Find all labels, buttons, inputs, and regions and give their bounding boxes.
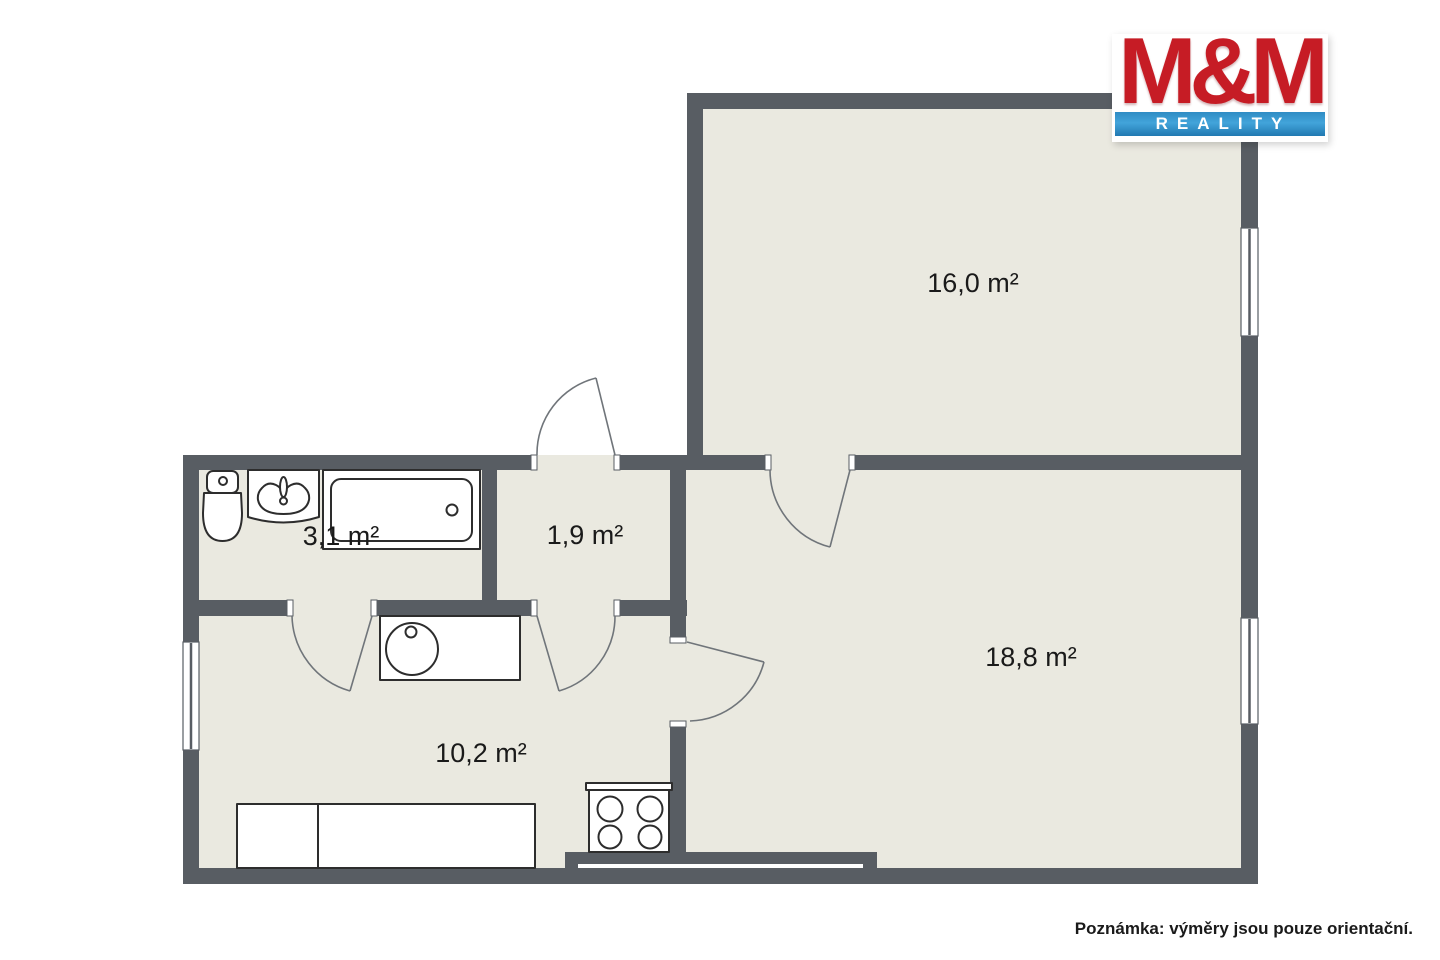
jamb (531, 455, 537, 470)
window-right-top (1241, 228, 1258, 336)
jamb (849, 455, 855, 470)
wall-segment (183, 868, 1258, 884)
wall-segment (183, 455, 537, 470)
wall-segment (849, 455, 1241, 470)
logo-title: M&M (1112, 32, 1328, 110)
wall-segment (687, 109, 703, 470)
disclaimer-note: Poznámka: výměry jsou pouze orientační. (1075, 919, 1413, 939)
room-label-10-2: 10,2 m² (435, 738, 527, 768)
jamb (670, 637, 686, 643)
door-arc (537, 378, 596, 455)
jamb (614, 600, 620, 616)
window-left (183, 642, 199, 750)
logo-subtitle: REALITY (1115, 112, 1325, 136)
jamb (670, 721, 686, 727)
bed-icon (237, 804, 535, 868)
stove-icon (586, 783, 672, 852)
door-leaf (596, 378, 615, 455)
toilet-icon (203, 471, 242, 541)
room-label-18-8: 18,8 m² (985, 642, 1077, 672)
window-band-bottom (578, 864, 863, 868)
floor-plan-page: 16,0 m² 18,8 m² 10,2 m² 1,9 m² 3,1 m² M&… (0, 0, 1440, 960)
wall-segment (371, 600, 537, 616)
jamb (287, 600, 293, 616)
window-right-bottom (1241, 618, 1258, 724)
jamb (765, 455, 771, 470)
jamb (531, 600, 537, 616)
floor-plan: 16,0 m² 18,8 m² 10,2 m² 1,9 m² 3,1 m² (0, 0, 1440, 960)
jamb (614, 455, 620, 470)
wall-segment (482, 470, 497, 600)
wall-segment (620, 455, 771, 470)
room-label-3-1: 3,1 m² (303, 521, 380, 551)
mm-reality-logo: M&M REALITY (1112, 34, 1328, 142)
wall-segment (197, 600, 293, 616)
kitchen-sink-icon (380, 616, 520, 680)
washbasin-icon (248, 470, 319, 523)
wall-segment (1241, 93, 1258, 884)
room-label-16-0: 16,0 m² (927, 268, 1019, 298)
jamb (371, 600, 377, 616)
entrance-door (537, 378, 615, 455)
room-label-1-9: 1,9 m² (547, 520, 624, 550)
wall-segment (670, 470, 686, 643)
